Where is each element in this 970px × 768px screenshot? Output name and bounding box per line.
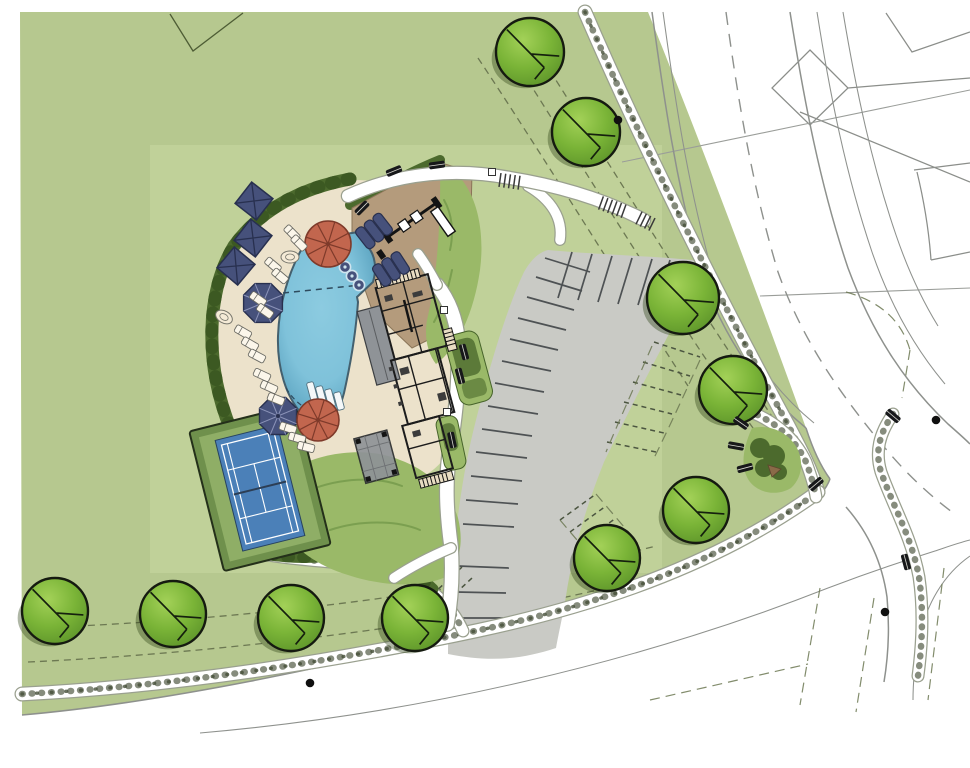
patio-table xyxy=(281,251,299,263)
red-umbrella-icon xyxy=(305,221,351,267)
in-pool-table xyxy=(353,279,364,290)
parking-stall-line xyxy=(456,592,506,593)
utility-dot xyxy=(881,608,890,617)
trash-can xyxy=(444,409,451,416)
utility-dot xyxy=(306,679,315,688)
utility-dot xyxy=(614,116,623,125)
site-plan-page xyxy=(0,0,970,768)
utility-dot xyxy=(932,416,941,425)
trash-can xyxy=(489,169,496,176)
red-umbrella-icon xyxy=(297,399,339,441)
site-plan-drawing xyxy=(0,0,970,768)
trash-can xyxy=(441,307,448,314)
